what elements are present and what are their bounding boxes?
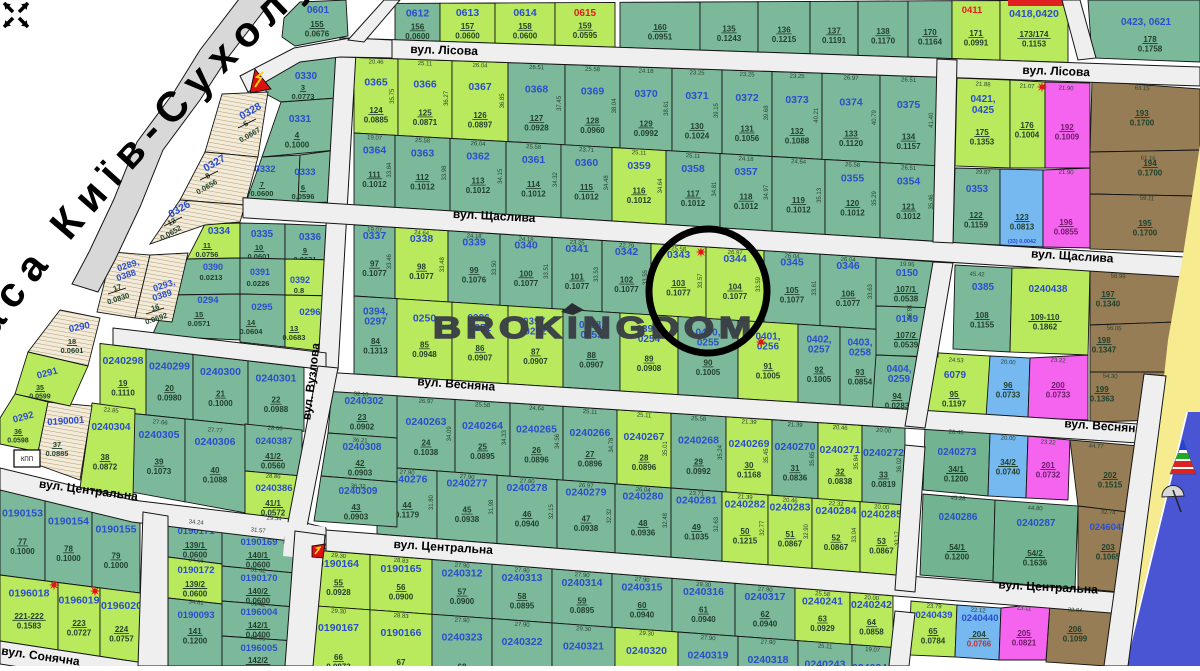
svg-text:35.24: 35.24 <box>718 444 724 460</box>
svg-text:0.0938: 0.0938 <box>455 515 480 524</box>
svg-text:205: 205 <box>1017 629 1031 638</box>
svg-text:0.1000: 0.1000 <box>104 561 129 570</box>
svg-text:99: 99 <box>470 266 479 275</box>
svg-text:0240244: 0240244 <box>852 662 893 666</box>
svg-text:24.64: 24.64 <box>791 159 807 166</box>
svg-text:113: 113 <box>472 177 485 186</box>
svg-text:41.40: 41.40 <box>929 112 935 128</box>
svg-text:34.56: 34.56 <box>555 433 561 449</box>
svg-text:38.04: 38.04 <box>612 98 618 114</box>
svg-text:0.1005: 0.1005 <box>807 375 832 384</box>
svg-text:0.0940: 0.0940 <box>630 611 655 620</box>
svg-text:33.57: 33.57 <box>698 273 704 289</box>
svg-text:0.0907: 0.0907 <box>579 360 604 369</box>
svg-text:0.1636: 0.1636 <box>1023 559 1048 568</box>
svg-text:45.28: 45.28 <box>950 495 966 502</box>
svg-text:59.11: 59.11 <box>1140 196 1156 203</box>
svg-text:0190093: 0190093 <box>178 610 215 621</box>
svg-text:0.1009: 0.1009 <box>1055 133 1080 142</box>
svg-text:0.1005: 0.1005 <box>696 368 721 377</box>
svg-text:0240286: 0240286 <box>939 512 978 523</box>
svg-text:0190153: 0190153 <box>2 508 43 520</box>
svg-text:55: 55 <box>334 578 343 587</box>
svg-text:15: 15 <box>195 310 203 319</box>
svg-text:0.1164: 0.1164 <box>918 38 943 47</box>
svg-text:0374: 0374 <box>839 96 863 108</box>
svg-text:221-222: 221-222 <box>14 612 44 621</box>
svg-text:0240319: 0240319 <box>688 650 729 662</box>
svg-text:18.56: 18.56 <box>905 304 911 320</box>
svg-text:89: 89 <box>645 355 654 364</box>
svg-text:203: 203 <box>1101 543 1115 552</box>
svg-text:0.0873: 0.0873 <box>326 663 351 666</box>
svg-text:24.64: 24.64 <box>414 230 430 237</box>
svg-text:171: 171 <box>969 29 983 38</box>
svg-text:56: 56 <box>397 583 406 592</box>
svg-text:0240266: 0240266 <box>570 427 611 439</box>
svg-text:0240267: 0240267 <box>624 431 665 443</box>
svg-text:40.21: 40.21 <box>814 107 820 123</box>
svg-text:192: 192 <box>1060 123 1074 132</box>
svg-text:0.1110: 0.1110 <box>111 388 135 397</box>
svg-text:33.84: 33.84 <box>387 162 393 178</box>
svg-text:22.32: 22.32 <box>828 501 844 508</box>
svg-text:0.0858: 0.0858 <box>859 628 884 637</box>
svg-text:0.1000: 0.1000 <box>56 554 81 563</box>
svg-text:0196005: 0196005 <box>241 643 279 654</box>
svg-text:0240440: 0240440 <box>962 613 999 624</box>
svg-text:0.1077: 0.1077 <box>565 282 590 291</box>
svg-text:0.0871: 0.0871 <box>413 118 438 127</box>
svg-text:33.98: 33.98 <box>442 165 448 181</box>
svg-text:32: 32 <box>836 467 845 476</box>
svg-text:19.07: 19.07 <box>865 647 881 654</box>
svg-text:79: 79 <box>112 551 121 560</box>
svg-text:26.51: 26.51 <box>901 165 917 172</box>
svg-text:9: 9 <box>303 246 307 255</box>
svg-text:0333: 0333 <box>294 167 315 178</box>
svg-text:85: 85 <box>420 340 429 349</box>
svg-text:0.1583: 0.1583 <box>17 621 42 630</box>
svg-text:0.1012: 0.1012 <box>681 199 706 208</box>
svg-text:105: 105 <box>785 286 799 295</box>
svg-text:19.95: 19.95 <box>899 262 915 269</box>
svg-text:0295: 0295 <box>251 302 273 313</box>
svg-text:58: 58 <box>518 592 527 601</box>
svg-text:20.46: 20.46 <box>368 59 384 66</box>
svg-text:0.1077: 0.1077 <box>780 296 805 305</box>
svg-text:29.87: 29.87 <box>975 170 991 177</box>
svg-text:0246043: 0246043 <box>1090 522 1127 533</box>
svg-text:224: 224 <box>115 625 129 634</box>
svg-text:96: 96 <box>1004 381 1013 390</box>
svg-text:111: 111 <box>368 170 381 179</box>
svg-text:21.90: 21.90 <box>1058 86 1074 93</box>
svg-text:34.33: 34.33 <box>502 430 508 446</box>
svg-text:0.0683: 0.0683 <box>283 333 306 342</box>
svg-text:0259: 0259 <box>888 374 911 385</box>
svg-text:31.98: 31.98 <box>489 499 495 515</box>
svg-text:34.09: 34.09 <box>447 426 453 442</box>
svg-text:29.30: 29.30 <box>331 553 347 560</box>
svg-text:0418,0420: 0418,0420 <box>1009 8 1059 20</box>
svg-text:0.1035: 0.1035 <box>684 533 709 542</box>
svg-text:27.90: 27.90 <box>760 639 776 646</box>
svg-text:35.84: 35.84 <box>854 454 860 470</box>
svg-text:19.07: 19.07 <box>367 135 383 142</box>
svg-text:0335: 0335 <box>251 229 274 240</box>
svg-text:0.1157: 0.1157 <box>896 142 921 151</box>
svg-text:0196018: 0196018 <box>9 588 50 600</box>
svg-text:0190165: 0190165 <box>381 563 422 575</box>
svg-text:106: 106 <box>841 290 855 299</box>
svg-text:20.00: 20.00 <box>1000 359 1016 366</box>
svg-text:88: 88 <box>587 351 596 360</box>
svg-text:158: 158 <box>518 22 532 31</box>
svg-text:47: 47 <box>582 515 591 524</box>
svg-text:33.51: 33.51 <box>544 263 550 279</box>
svg-text:54/1: 54/1 <box>949 543 965 552</box>
svg-text:27.90: 27.90 <box>514 567 530 574</box>
svg-text:31.80: 31.80 <box>429 494 435 510</box>
svg-text:0240387: 0240387 <box>256 436 293 447</box>
svg-text:64: 64 <box>867 618 876 627</box>
svg-text:20.45: 20.45 <box>948 429 964 436</box>
svg-text:26: 26 <box>532 446 541 455</box>
svg-text:0240264: 0240264 <box>462 420 503 432</box>
svg-text:97: 97 <box>370 260 379 269</box>
svg-text:0190167: 0190167 <box>318 622 359 634</box>
svg-text:0.0733: 0.0733 <box>1046 391 1071 400</box>
svg-text:6079: 6079 <box>944 370 967 381</box>
svg-text:140/1: 140/1 <box>248 551 269 560</box>
svg-text:0331: 0331 <box>289 114 312 125</box>
svg-text:0.0960: 0.0960 <box>580 126 605 135</box>
svg-text:0240438: 0240438 <box>1029 284 1068 295</box>
svg-text:0.1073: 0.1073 <box>147 467 172 476</box>
svg-text:134: 134 <box>902 133 916 142</box>
svg-text:0370: 0370 <box>634 88 658 100</box>
svg-text:20.00: 20.00 <box>874 504 890 511</box>
svg-text:42: 42 <box>356 459 365 468</box>
svg-text:21.90: 21.90 <box>1058 170 1074 177</box>
svg-text:0.1353: 0.1353 <box>970 138 995 147</box>
svg-text:26.97: 26.97 <box>578 483 594 490</box>
svg-text:20.00: 20.00 <box>1000 435 1016 442</box>
svg-text:0258: 0258 <box>849 347 872 358</box>
svg-text:22.12: 22.12 <box>970 607 986 614</box>
svg-text:27.90: 27.90 <box>634 577 650 584</box>
svg-text:29.30: 29.30 <box>331 609 347 616</box>
svg-text:0353: 0353 <box>966 184 989 195</box>
svg-text:20.00: 20.00 <box>876 428 892 435</box>
svg-text:63.15: 63.15 <box>1134 85 1150 92</box>
svg-text:56.05: 56.05 <box>1106 325 1122 332</box>
svg-text:28.83: 28.83 <box>393 558 409 565</box>
svg-text:57: 57 <box>458 588 467 597</box>
svg-text:27.90: 27.90 <box>454 617 470 624</box>
svg-text:0294: 0294 <box>197 295 219 306</box>
svg-text:101: 101 <box>570 273 584 282</box>
svg-text:0.1515: 0.1515 <box>1098 481 1123 490</box>
svg-text:156: 156 <box>411 22 425 31</box>
svg-text:0421,: 0421, <box>970 94 995 105</box>
svg-text:108: 108 <box>975 311 989 320</box>
svg-text:28.83: 28.83 <box>393 613 409 620</box>
svg-text:0240243: 0240243 <box>805 658 846 666</box>
svg-text:0196019: 0196019 <box>59 595 100 607</box>
svg-text:60: 60 <box>638 601 647 610</box>
svg-text:23: 23 <box>358 413 367 422</box>
svg-text:78: 78 <box>64 544 73 553</box>
svg-text:0.1012: 0.1012 <box>362 180 387 189</box>
svg-text:59: 59 <box>578 597 587 606</box>
svg-text:0375: 0375 <box>897 99 921 111</box>
svg-text:0240273: 0240273 <box>938 447 977 458</box>
svg-text:33.46: 33.46 <box>387 254 393 270</box>
svg-text:0240321: 0240321 <box>563 640 604 652</box>
svg-text:67: 67 <box>397 658 406 666</box>
svg-text:28.86: 28.86 <box>265 473 281 480</box>
svg-text:32.90: 32.90 <box>804 523 810 539</box>
svg-text:0.0940: 0.0940 <box>753 620 778 629</box>
svg-text:125: 125 <box>418 108 432 117</box>
svg-text:0.1000: 0.1000 <box>10 547 35 556</box>
svg-text:198: 198 <box>1097 336 1111 345</box>
svg-text:107/1: 107/1 <box>896 285 917 294</box>
svg-text:61.16: 61.16 <box>1140 155 1156 162</box>
svg-text:0.0604: 0.0604 <box>240 327 264 336</box>
svg-text:0.1313: 0.1313 <box>363 347 388 356</box>
svg-text:19.07: 19.07 <box>367 227 383 234</box>
svg-text:33.50: 33.50 <box>492 260 498 276</box>
svg-text:40.79: 40.79 <box>872 109 878 125</box>
svg-text:26.04: 26.04 <box>470 141 486 148</box>
svg-text:34.32: 34.32 <box>553 171 559 187</box>
svg-text:129: 129 <box>639 119 653 128</box>
svg-text:0.1076: 0.1076 <box>462 276 487 285</box>
svg-text:118: 118 <box>740 193 753 202</box>
svg-text:0.0897: 0.0897 <box>468 121 493 130</box>
svg-text:0.1215: 0.1215 <box>772 35 797 44</box>
svg-text:25.58: 25.58 <box>526 144 542 151</box>
svg-text:26.04: 26.04 <box>840 257 856 264</box>
svg-text:36.32: 36.32 <box>350 483 366 490</box>
svg-text:0240318: 0240318 <box>748 654 789 666</box>
svg-text:0613: 0613 <box>456 7 480 19</box>
svg-text:29.30: 29.30 <box>696 582 712 589</box>
svg-text:34.78: 34.78 <box>609 437 615 453</box>
svg-text:123: 123 <box>1015 213 1029 222</box>
svg-text:107/2: 107/2 <box>896 331 917 340</box>
svg-text:20.46: 20.46 <box>832 425 848 432</box>
svg-text:20: 20 <box>165 384 174 393</box>
svg-text:0.1012: 0.1012 <box>521 189 546 198</box>
svg-text:0190155: 0190155 <box>96 524 137 536</box>
svg-text:0354: 0354 <box>897 176 921 188</box>
svg-text:0362: 0362 <box>466 151 490 163</box>
svg-text:35.01: 35.01 <box>663 441 669 457</box>
svg-text:0.1170: 0.1170 <box>871 37 896 46</box>
svg-text:0.1120: 0.1120 <box>839 139 864 148</box>
svg-text:0.1012: 0.1012 <box>410 183 435 192</box>
svg-text:0.0988: 0.0988 <box>264 405 289 414</box>
svg-text:0240320: 0240320 <box>626 645 667 657</box>
svg-text:33.59: 33.59 <box>756 276 762 292</box>
svg-text:34.48: 34.48 <box>604 175 610 191</box>
svg-text:0.1000: 0.1000 <box>285 141 310 150</box>
svg-text:29.30: 29.30 <box>639 631 655 638</box>
svg-text:86: 86 <box>476 344 485 353</box>
svg-text:0.0929: 0.0929 <box>810 624 835 633</box>
svg-text:0240323: 0240323 <box>442 631 483 643</box>
svg-text:20.00: 20.00 <box>864 595 880 602</box>
svg-text:36: 36 <box>14 429 22 436</box>
svg-text:0336: 0336 <box>299 232 322 243</box>
svg-text:25.58: 25.58 <box>815 591 831 598</box>
svg-text:28.66: 28.66 <box>267 425 283 432</box>
svg-text:24.18: 24.18 <box>466 233 482 240</box>
svg-text:0190172: 0190172 <box>178 565 215 576</box>
svg-text:0.1168: 0.1168 <box>737 471 762 480</box>
svg-text:56.99: 56.99 <box>1110 273 1126 280</box>
svg-text:37: 37 <box>53 440 61 449</box>
svg-text:44: 44 <box>403 501 412 510</box>
svg-text:0257: 0257 <box>808 345 831 356</box>
svg-text:0240386: 0240386 <box>256 483 293 494</box>
svg-text:0.1243: 0.1243 <box>717 34 742 43</box>
svg-text:27.90: 27.90 <box>519 478 535 485</box>
svg-text:34/1: 34/1 <box>948 465 964 474</box>
svg-text:0240322: 0240322 <box>502 636 543 648</box>
svg-text:37.45: 37.45 <box>557 95 563 111</box>
svg-text:0371: 0371 <box>685 90 709 102</box>
svg-text:204: 204 <box>972 630 986 639</box>
svg-text:20.46: 20.46 <box>782 498 798 505</box>
svg-text:36.02: 36.02 <box>897 457 903 473</box>
svg-text:195: 195 <box>1138 219 1152 228</box>
svg-text:0.0907: 0.0907 <box>523 357 548 366</box>
svg-text:0.1065: 0.1065 <box>1096 553 1121 562</box>
svg-text:25: 25 <box>478 442 487 451</box>
svg-text:0.0907: 0.0907 <box>468 353 493 362</box>
svg-text:0.0213: 0.0213 <box>200 273 223 282</box>
svg-text:139/2: 139/2 <box>185 580 206 589</box>
svg-text:39.68: 39.68 <box>764 105 770 121</box>
svg-text:199: 199 <box>1095 385 1109 394</box>
svg-text:24.18: 24.18 <box>738 156 754 163</box>
svg-text:196: 196 <box>1059 218 1073 227</box>
svg-text:193: 193 <box>1135 109 1149 118</box>
svg-text:197: 197 <box>1101 290 1115 299</box>
svg-text:0.1077: 0.1077 <box>362 269 387 278</box>
svg-text:BROKINGDOM: BROKINGDOM <box>433 311 756 345</box>
svg-text:0.0903: 0.0903 <box>344 513 369 522</box>
svg-text:173/174: 173/174 <box>1020 30 1049 39</box>
svg-text:0240304: 0240304 <box>92 422 131 433</box>
svg-text:0240439: 0240439 <box>916 610 953 621</box>
svg-text:0368: 0368 <box>525 83 549 95</box>
svg-text:0.0539: 0.0539 <box>894 341 919 350</box>
svg-text:115: 115 <box>580 183 593 192</box>
svg-text:0.0600: 0.0600 <box>513 31 538 40</box>
svg-text:0240263: 0240263 <box>406 416 447 428</box>
svg-text:23.25: 23.25 <box>689 70 705 77</box>
svg-text:0.0733: 0.0733 <box>996 391 1021 400</box>
svg-text:33.48: 33.48 <box>440 257 446 273</box>
svg-text:137: 137 <box>827 26 841 35</box>
svg-text:7: 7 <box>260 180 264 189</box>
svg-text:27.90: 27.90 <box>459 474 475 481</box>
svg-text:вул. Лісова: вул. Лісова <box>410 42 478 58</box>
svg-text:45: 45 <box>463 506 472 515</box>
svg-text:0.0836: 0.0836 <box>783 474 808 483</box>
svg-text:32.32: 32.32 <box>607 508 613 524</box>
svg-text:0.0756: 0.0756 <box>196 250 219 259</box>
svg-text:92: 92 <box>815 365 824 374</box>
svg-text:93: 93 <box>856 368 865 377</box>
svg-text:КПП: КПП <box>21 457 33 463</box>
svg-text:0.0855: 0.0855 <box>1054 228 1079 237</box>
svg-text:40: 40 <box>211 466 220 475</box>
svg-text:116: 116 <box>633 186 646 195</box>
svg-text:34.81: 34.81 <box>712 181 718 197</box>
svg-text:0373: 0373 <box>785 94 809 106</box>
svg-text:77: 77 <box>18 537 27 546</box>
svg-text:95: 95 <box>950 390 959 399</box>
svg-text:27.90: 27.90 <box>454 563 470 570</box>
svg-text:29.30: 29.30 <box>576 626 592 633</box>
svg-text:0.1012: 0.1012 <box>896 212 921 221</box>
svg-text:26.51: 26.51 <box>901 77 917 84</box>
svg-text:133: 133 <box>844 130 858 139</box>
svg-text:0.0784: 0.0784 <box>921 637 946 646</box>
svg-text:142/1: 142/1 <box>248 621 269 630</box>
svg-text:176: 176 <box>1020 121 1034 130</box>
svg-text:24.18: 24.18 <box>638 69 654 76</box>
svg-text:0330: 0330 <box>295 71 318 82</box>
svg-text:0.0821: 0.0821 <box>1012 639 1037 648</box>
svg-text:138: 138 <box>876 27 890 36</box>
svg-text:30: 30 <box>745 461 754 470</box>
svg-text:0.1012: 0.1012 <box>574 193 599 202</box>
svg-text:21.39: 21.39 <box>737 494 753 501</box>
svg-text:25.58: 25.58 <box>415 138 431 145</box>
svg-text:0366: 0366 <box>413 79 437 91</box>
svg-text:0361: 0361 <box>522 154 546 166</box>
svg-text:0.0980: 0.0980 <box>157 394 182 403</box>
svg-text:0.1077: 0.1077 <box>514 279 539 288</box>
svg-text:39: 39 <box>155 458 164 467</box>
svg-text:114: 114 <box>527 180 540 189</box>
svg-text:44.77: 44.77 <box>1088 443 1104 450</box>
svg-text:22.79: 22.79 <box>619 243 635 250</box>
svg-text:63: 63 <box>818 615 827 624</box>
svg-text:0240271: 0240271 <box>820 444 861 456</box>
svg-text:14: 14 <box>247 318 256 327</box>
svg-text:0.1340: 0.1340 <box>1096 300 1121 309</box>
svg-text:104: 104 <box>728 283 742 292</box>
svg-text:36.21: 36.21 <box>352 437 368 444</box>
svg-text:0.1012: 0.1012 <box>627 196 652 205</box>
svg-text:0.1012: 0.1012 <box>466 186 491 195</box>
svg-text:0.0895: 0.0895 <box>570 606 595 615</box>
svg-text:0.0598: 0.0598 <box>7 438 29 445</box>
svg-text:52: 52 <box>832 534 841 543</box>
svg-text:26.97: 26.97 <box>727 250 743 257</box>
svg-text:0.1197: 0.1197 <box>942 400 967 409</box>
svg-text:27.90: 27.90 <box>514 622 530 629</box>
